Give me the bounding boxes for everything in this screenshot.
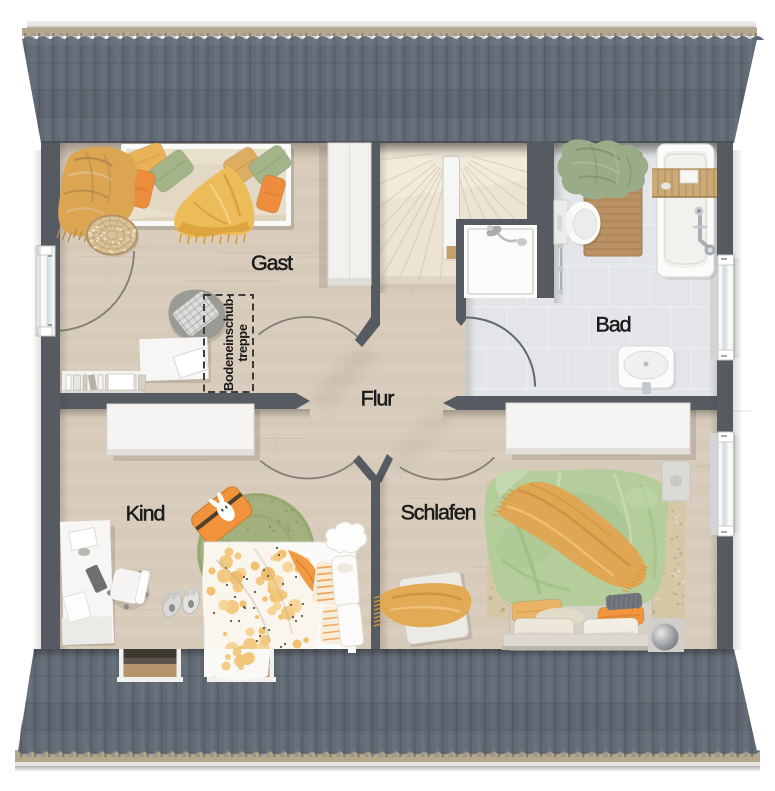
svg-text:Schlafen: Schlafen: [401, 501, 476, 525]
svg-text:Bodeneinschub-: Bodeneinschub-: [221, 295, 236, 391]
svg-text:Gast: Gast: [251, 251, 293, 275]
svg-text:Bad: Bad: [596, 313, 631, 337]
svg-text:treppe: treppe: [235, 324, 250, 362]
svg-text:Kind: Kind: [126, 502, 165, 526]
svg-text:Flur: Flur: [361, 387, 395, 411]
